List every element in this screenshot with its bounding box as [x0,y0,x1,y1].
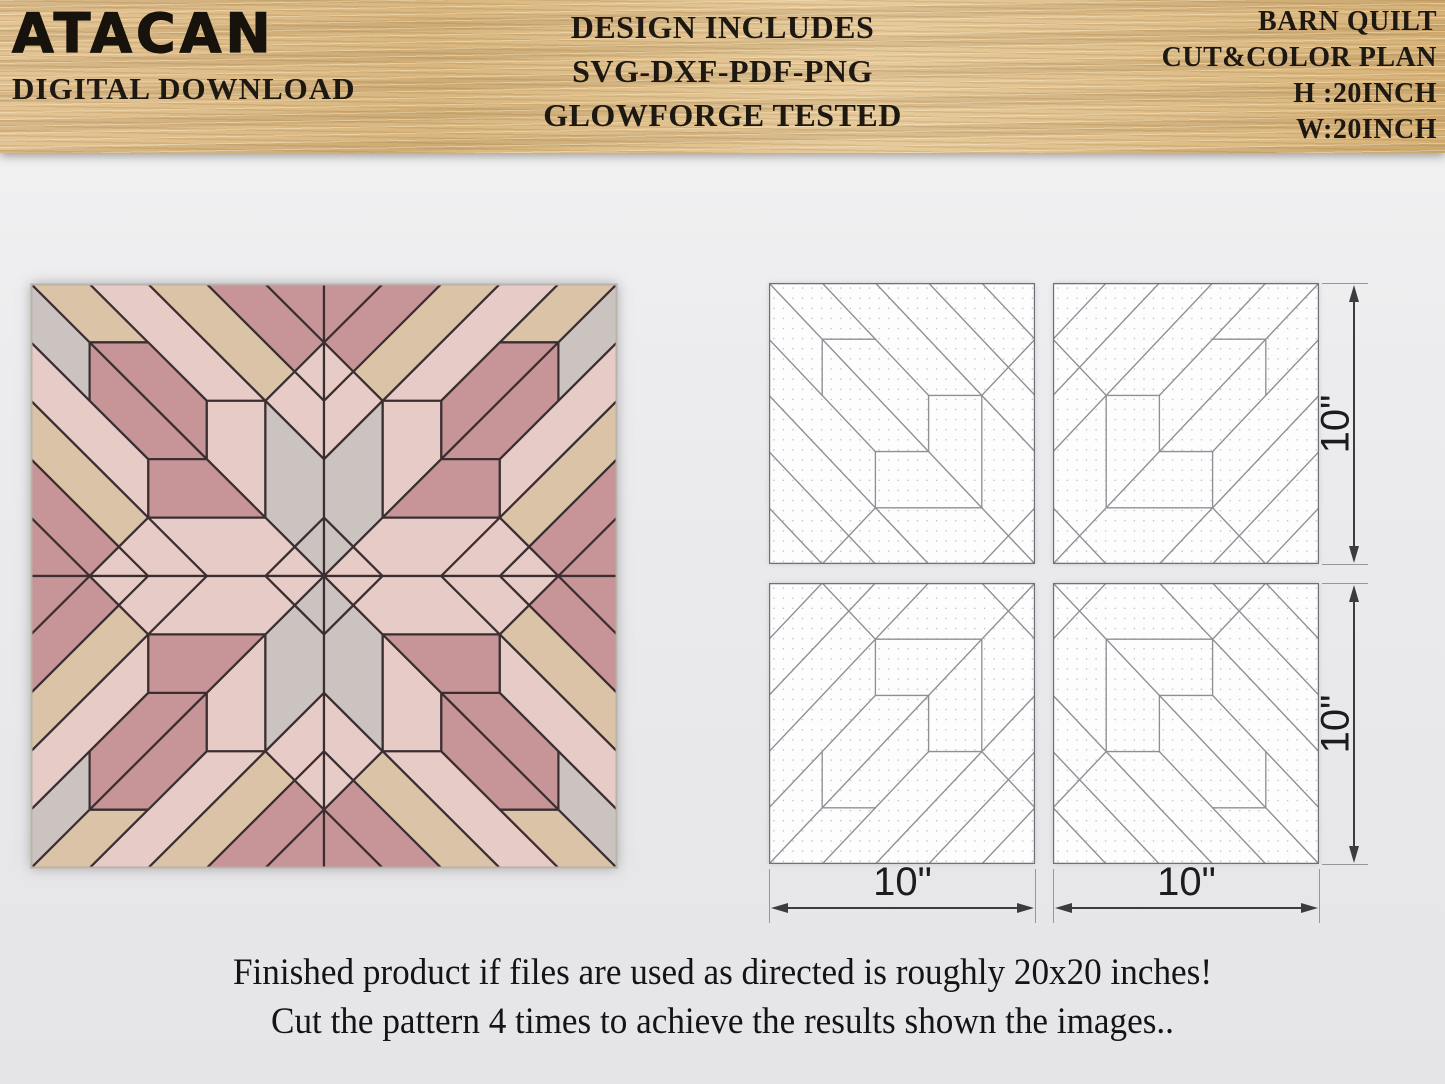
extension-line [1322,283,1368,284]
arrowhead-down-icon [1349,546,1359,563]
dimension-line [775,907,1030,909]
dimension-height-top-tile: 10" [1322,283,1406,565]
pattern-tile-bottom-right [1053,583,1319,864]
caption-block: Finished product if files are used as di… [0,948,1445,1046]
dimension-width-left-tile: 10" [769,866,1036,930]
dimension-label: 10" [1053,860,1320,905]
arrowhead-up-icon [1349,285,1359,302]
header-banner: ATACAN DIGITAL DOWNLOAD DESIGN INCLUDES … [0,0,1445,153]
header-center-text: DESIGN INCLUDES SVG-DXF-PDF-PNG GLOWFORG… [455,5,990,137]
caption-line-1: Finished product if files are used as di… [36,948,1409,997]
dimension-line [1059,907,1314,909]
pattern-tile-bottom-left [769,583,1035,864]
arrowhead-down-icon [1349,846,1359,863]
height-spec-line: H :20INCH [1162,76,1437,112]
design-includes-line: DESIGN INCLUDES [455,5,990,49]
brand-logo: ATACAN [12,2,356,65]
width-spec-line: W:20INCH [1162,112,1437,148]
caption-line-2: Cut the pattern 4 times to achieve the r… [36,997,1409,1046]
brand-block: ATACAN DIGITAL DOWNLOAD [12,2,356,107]
dimension-label: 10" [769,860,1036,905]
header-right-text: BARN QUILT CUT&COLOR PLAN H :20INCH W:20… [1162,4,1437,148]
pattern-tile-top-left [769,283,1035,564]
quilt-color-preview [31,284,617,868]
pattern-tile-top-right [1053,283,1319,564]
product-listing-image: ATACAN DIGITAL DOWNLOAD DESIGN INCLUDES … [0,0,1445,1084]
extension-line [1322,864,1368,865]
file-formats-line: SVG-DXF-PDF-PNG [455,49,990,93]
brand-tagline: DIGITAL DOWNLOAD [12,71,356,107]
dimension-label: 10" [1314,395,1359,454]
plan-type-line: CUT&COLOR PLAN [1162,40,1437,76]
dimension-label: 10" [1314,695,1359,754]
extension-line [1322,583,1368,584]
product-title-line: BARN QUILT [1162,4,1437,40]
glowforge-tested-line: GLOWFORGE TESTED [455,93,990,137]
dimension-width-right-tile: 10" [1053,866,1320,930]
dimension-height-bottom-tile: 10" [1322,583,1406,865]
extension-line [1322,564,1368,565]
arrowhead-up-icon [1349,585,1359,602]
